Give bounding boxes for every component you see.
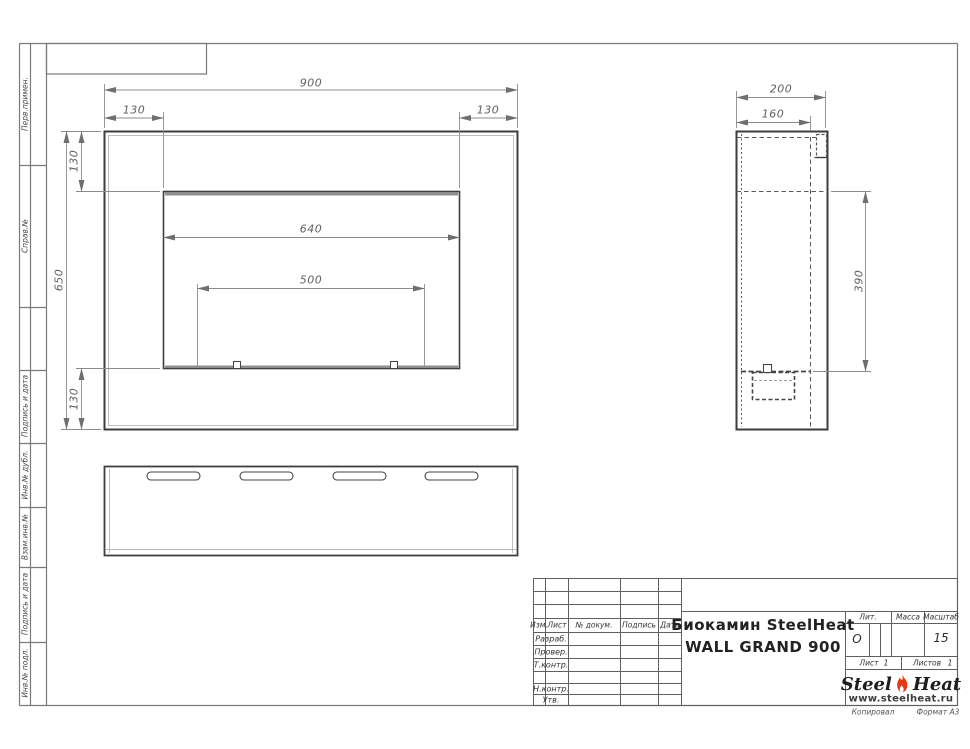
titleblock-listov-value: 1 [947, 659, 952, 668]
logo-heat-text: Heat [913, 674, 961, 695]
flame-icon [894, 673, 911, 695]
titleblock-list-value: 1 [883, 659, 888, 668]
dim-front-top-offset: 130 [68, 150, 81, 173]
dim-side-total-depth: 200 [770, 83, 793, 96]
logo-site-url: www.steelheat.ru [849, 694, 954, 705]
titleblock-row-utv: Утв. [543, 696, 560, 705]
titleblock-row-prover: Провер. [534, 648, 567, 657]
titleblock-scale-value: 15 [933, 631, 948, 645]
margin-label-podpis-data-2: Подпись и дата [21, 573, 30, 635]
top-left-stamp-box [47, 44, 207, 75]
steelheat-logo: Steel Heat [841, 673, 962, 695]
bottom-view [105, 467, 518, 556]
dim-front-burner-width: 500 [300, 274, 323, 287]
footer-format: Формат А3 [917, 708, 960, 717]
vent-slot-2 [240, 472, 293, 480]
titleblock-col-podpis: Подпись [622, 621, 656, 630]
dim-side-inner-depth: 160 [762, 108, 785, 121]
vent-slot-3 [333, 472, 386, 480]
titleblock-lit-label: Лит. [859, 613, 876, 622]
titleblock-mass-label: Масса [896, 613, 920, 622]
titleblock-col-list: Лист [547, 621, 566, 630]
dim-front-left-offset: 130 [123, 104, 146, 117]
titleblock-col-doc: № докум. [576, 621, 613, 630]
drawing-title-line1: Биокамин SteelHeat [671, 616, 854, 634]
side-view [737, 132, 828, 430]
titleblock-lit-value: О [852, 632, 861, 646]
dim-front-bottom-offset: 130 [68, 388, 81, 411]
margin-label-inv-podl: Инв.№ подл. [21, 648, 30, 697]
side-burner-box [753, 373, 795, 400]
titleblock-row-razrab: Разраб. [535, 635, 566, 644]
logo-steel-text: Steel [841, 674, 892, 695]
dim-front-total-width: 900 [300, 77, 323, 90]
titleblock-col-izm: Изм. [530, 621, 548, 630]
dim-front-total-height: 650 [53, 269, 66, 292]
vent-slot-4 [425, 472, 478, 480]
dim-side-opening-height: 390 [853, 270, 866, 293]
margin-label-vzam-inv: Взам.инв.№ [21, 514, 30, 560]
drawing-sheet: Перв.примен. Справ.№ Подпись и дата Инв.… [0, 0, 970, 749]
dim-front-right-offset: 130 [477, 104, 500, 117]
front-tab-left [234, 362, 241, 369]
titleblock-scale-label: Масштаб [923, 613, 959, 622]
footer-kopiroval: Копировал [852, 708, 895, 717]
titleblock-row-nkontr: Н.контр. [533, 685, 569, 694]
side-burner-tab [764, 365, 772, 373]
margin-label-perv-primen: Перв.примен. [21, 77, 30, 131]
titleblock-listov-label: Листов [913, 659, 941, 668]
dim-front-opening-width: 640 [300, 223, 323, 236]
drawing-title-line2: WALL GRAND 900 [685, 638, 841, 656]
front-tab-right [391, 362, 398, 369]
titleblock-row-tkontr: Т.контр. [534, 661, 569, 670]
margin-label-sprav-no: Справ.№ [21, 219, 30, 253]
margin-label-podpis-data-1: Подпись и дата [21, 375, 30, 437]
margin-label-inv-dubl: Инв.№ дубл. [21, 451, 30, 500]
vent-slot-1 [147, 472, 200, 480]
titleblock-list-label: Лист [859, 659, 878, 668]
